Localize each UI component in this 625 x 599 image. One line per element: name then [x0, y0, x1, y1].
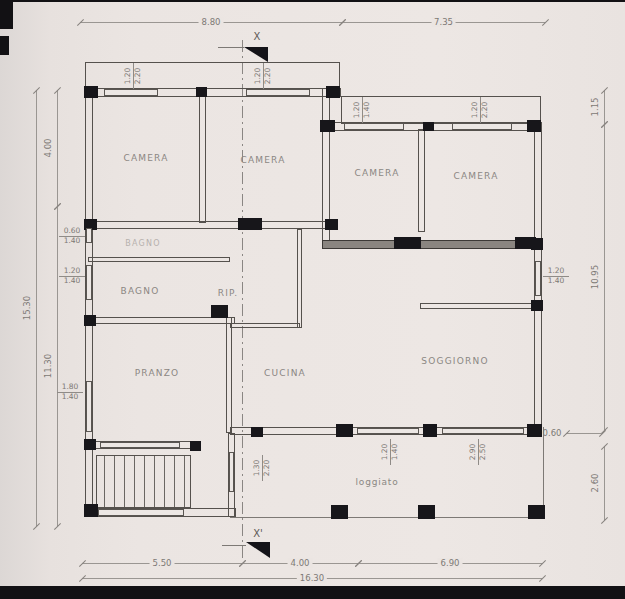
opening-width: 1.80: [57, 383, 83, 392]
dimension-label-dim-top-8p80: 8.80: [199, 17, 224, 27]
wall: [341, 96, 541, 124]
wall: [85, 221, 330, 229]
column: [325, 219, 338, 230]
opening-size-op-top-d: 1.202.20: [471, 97, 489, 123]
opening-width: 1.20: [471, 97, 480, 123]
dimension-line: [57, 206, 58, 526]
dimension-label-dim-right-0p60: 0.60: [540, 428, 565, 438]
column: [418, 505, 435, 519]
window-symbol: [246, 89, 310, 96]
opening-height: 1.40: [57, 392, 83, 402]
column: [336, 424, 353, 437]
stair-riser: [124, 456, 125, 507]
stair-riser: [144, 456, 145, 507]
column: [423, 122, 434, 131]
column: [84, 315, 96, 326]
opening-height: 2.50: [478, 439, 488, 465]
column: [84, 439, 96, 450]
wall: [297, 229, 302, 328]
wall: [420, 303, 541, 309]
opening-height: 1.40: [543, 276, 569, 286]
opening-size-op-bot-b: 1.201.40: [381, 439, 399, 465]
opening-size-op-top-c: 1.201.40: [353, 97, 371, 123]
section-label-top: X: [254, 31, 261, 42]
column: [515, 237, 536, 249]
opening-height: 2.20: [263, 63, 273, 89]
room-label-camera-3: CAMERA: [354, 168, 399, 178]
column: [527, 120, 541, 132]
opening-size-op-left-a: 0.601.40: [59, 227, 85, 245]
opening-width: 1.20: [543, 267, 569, 276]
opening-height: 1.40: [59, 236, 85, 246]
dimension-label-dim-left-4p00: 4.00: [43, 136, 53, 161]
window-symbol: [452, 123, 512, 130]
dimension-label-dim-bot-5p50: 5.50: [150, 558, 175, 568]
opening-size-op-left-c: 1.801.40: [57, 383, 83, 401]
room-label-pranzo: PRANZO: [135, 368, 180, 378]
opening-width: 1.20: [353, 97, 362, 123]
window-symbol: [98, 509, 184, 516]
opening-height: 1.40: [390, 439, 400, 465]
column: [251, 427, 263, 437]
dimension-label-dim-right-2p60: 2.60: [590, 471, 600, 496]
room-label-camera-2: CAMERA: [240, 155, 285, 165]
opening-size-op-bot-a: 1.302.20: [253, 455, 271, 481]
section-tick-top: [218, 47, 244, 48]
opening-height: 1.40: [362, 97, 372, 123]
dimension-tick: [542, 19, 549, 26]
room-label-cucina: CUCINA: [264, 368, 306, 378]
opening-width: 1.20: [254, 63, 263, 89]
dimension-label-dim-left-11p30: 11.30: [43, 351, 53, 381]
dimension-tick: [539, 575, 546, 582]
column: [331, 505, 348, 519]
opening-width: 1.20: [59, 267, 85, 276]
dimension-line: [604, 90, 605, 124]
opening-size-op-right-a: 1.201.40: [543, 267, 569, 285]
dimension-tick: [601, 517, 608, 524]
section-tick-bottom: [222, 545, 246, 546]
wall: [230, 323, 300, 328]
window-symbol: [442, 428, 524, 434]
room-label-loggiato: loggiato: [356, 477, 399, 487]
wall: [226, 317, 232, 433]
dimension-line: [604, 446, 605, 520]
stair-riser: [184, 456, 185, 507]
section-arrow-top-icon: [244, 47, 268, 62]
window-symbol: [86, 381, 92, 432]
column: [326, 86, 340, 98]
dimension-label-dim-top-7p35: 7.35: [431, 17, 456, 27]
column: [238, 218, 262, 230]
dimension-label-dim-right-10p95: 10.95: [590, 262, 600, 292]
dimension-line: [604, 124, 605, 430]
column: [528, 505, 545, 519]
stair-riser: [104, 456, 105, 507]
column: [84, 86, 98, 98]
dimension-line: [57, 90, 58, 206]
floor-plan-sheet: X X' CAMERACAMERACAMERACAMERABAGNOBAGNOR…: [0, 0, 625, 599]
dimension-label-dim-bot-4p00: 4.00: [288, 558, 313, 568]
section-label-bottom: X': [253, 528, 263, 539]
section-arrow-bottom-icon: [246, 542, 270, 558]
window-symbol: [104, 89, 158, 96]
room-label-bagno: BAGNO: [121, 286, 160, 296]
dimension-line: [566, 433, 602, 434]
window-symbol: [535, 261, 541, 296]
opening-size-op-left-b: 1.201.40: [59, 267, 85, 285]
opening-height: 2.20: [480, 97, 490, 123]
dimension-tick: [599, 430, 606, 437]
opening-width: 1.20: [381, 439, 390, 465]
wall: [418, 129, 425, 232]
room-label-camera-1: CAMERA: [123, 153, 168, 163]
stair-riser: [114, 456, 115, 507]
column: [84, 504, 98, 517]
opening-size-op-top-a: 1.202.20: [124, 63, 142, 89]
opening-height: 2.20: [133, 63, 143, 89]
column: [190, 441, 201, 451]
wall: [85, 317, 235, 324]
window-symbol: [229, 452, 234, 492]
room-label-rip: RIP.: [218, 288, 239, 298]
dimension-tick: [54, 523, 61, 530]
stair-riser: [154, 456, 155, 507]
opening-width: 2.90: [469, 439, 478, 465]
dimension-label-dim-left-15p30: 15.30: [22, 293, 32, 323]
column: [531, 300, 543, 311]
column: [320, 120, 335, 132]
dimension-label-dim-bot-16p30: 16.30: [297, 573, 327, 583]
opening-width: 1.30: [253, 455, 262, 481]
opening-size-op-bot-c: 2.902.50: [469, 439, 487, 465]
window-symbol: [344, 123, 404, 130]
window-symbol: [86, 265, 92, 300]
wall: [85, 88, 93, 517]
wall: [199, 95, 206, 223]
dimension-label-dim-bot-6p90: 6.90: [438, 558, 463, 568]
opening-height: 1.40: [59, 276, 85, 286]
opening-width: 1.20: [124, 63, 133, 89]
stair-riser: [134, 456, 135, 507]
window-symbol: [357, 428, 419, 434]
opening-width: 0.60: [59, 227, 85, 236]
opening-size-op-top-b: 1.202.20: [254, 63, 272, 89]
window-symbol: [100, 442, 180, 448]
plan-canvas: X X' CAMERACAMERACAMERACAMERABAGNOBAGNOR…: [0, 0, 625, 599]
dimension-tick: [33, 523, 40, 530]
column: [211, 305, 228, 318]
floor-edge-line: [230, 517, 545, 518]
wall: [88, 257, 230, 262]
stair-riser: [164, 456, 165, 507]
column: [394, 237, 421, 249]
dimension-tick: [539, 560, 546, 567]
room-label-bagno-2: BAGNO: [125, 239, 160, 248]
room-label-camera-4: CAMERA: [453, 171, 498, 181]
column: [423, 424, 437, 437]
wall: [322, 240, 542, 249]
room-label-soggiorno: SOGGIORNO: [421, 356, 488, 366]
opening-height: 2.20: [262, 455, 272, 481]
dimension-label-dim-right-1p15: 1.15: [590, 95, 600, 120]
column: [196, 87, 207, 97]
dimension-line: [36, 90, 37, 526]
window-symbol: [86, 228, 92, 243]
stair-riser: [174, 456, 175, 507]
section-cut-line: [242, 40, 243, 562]
